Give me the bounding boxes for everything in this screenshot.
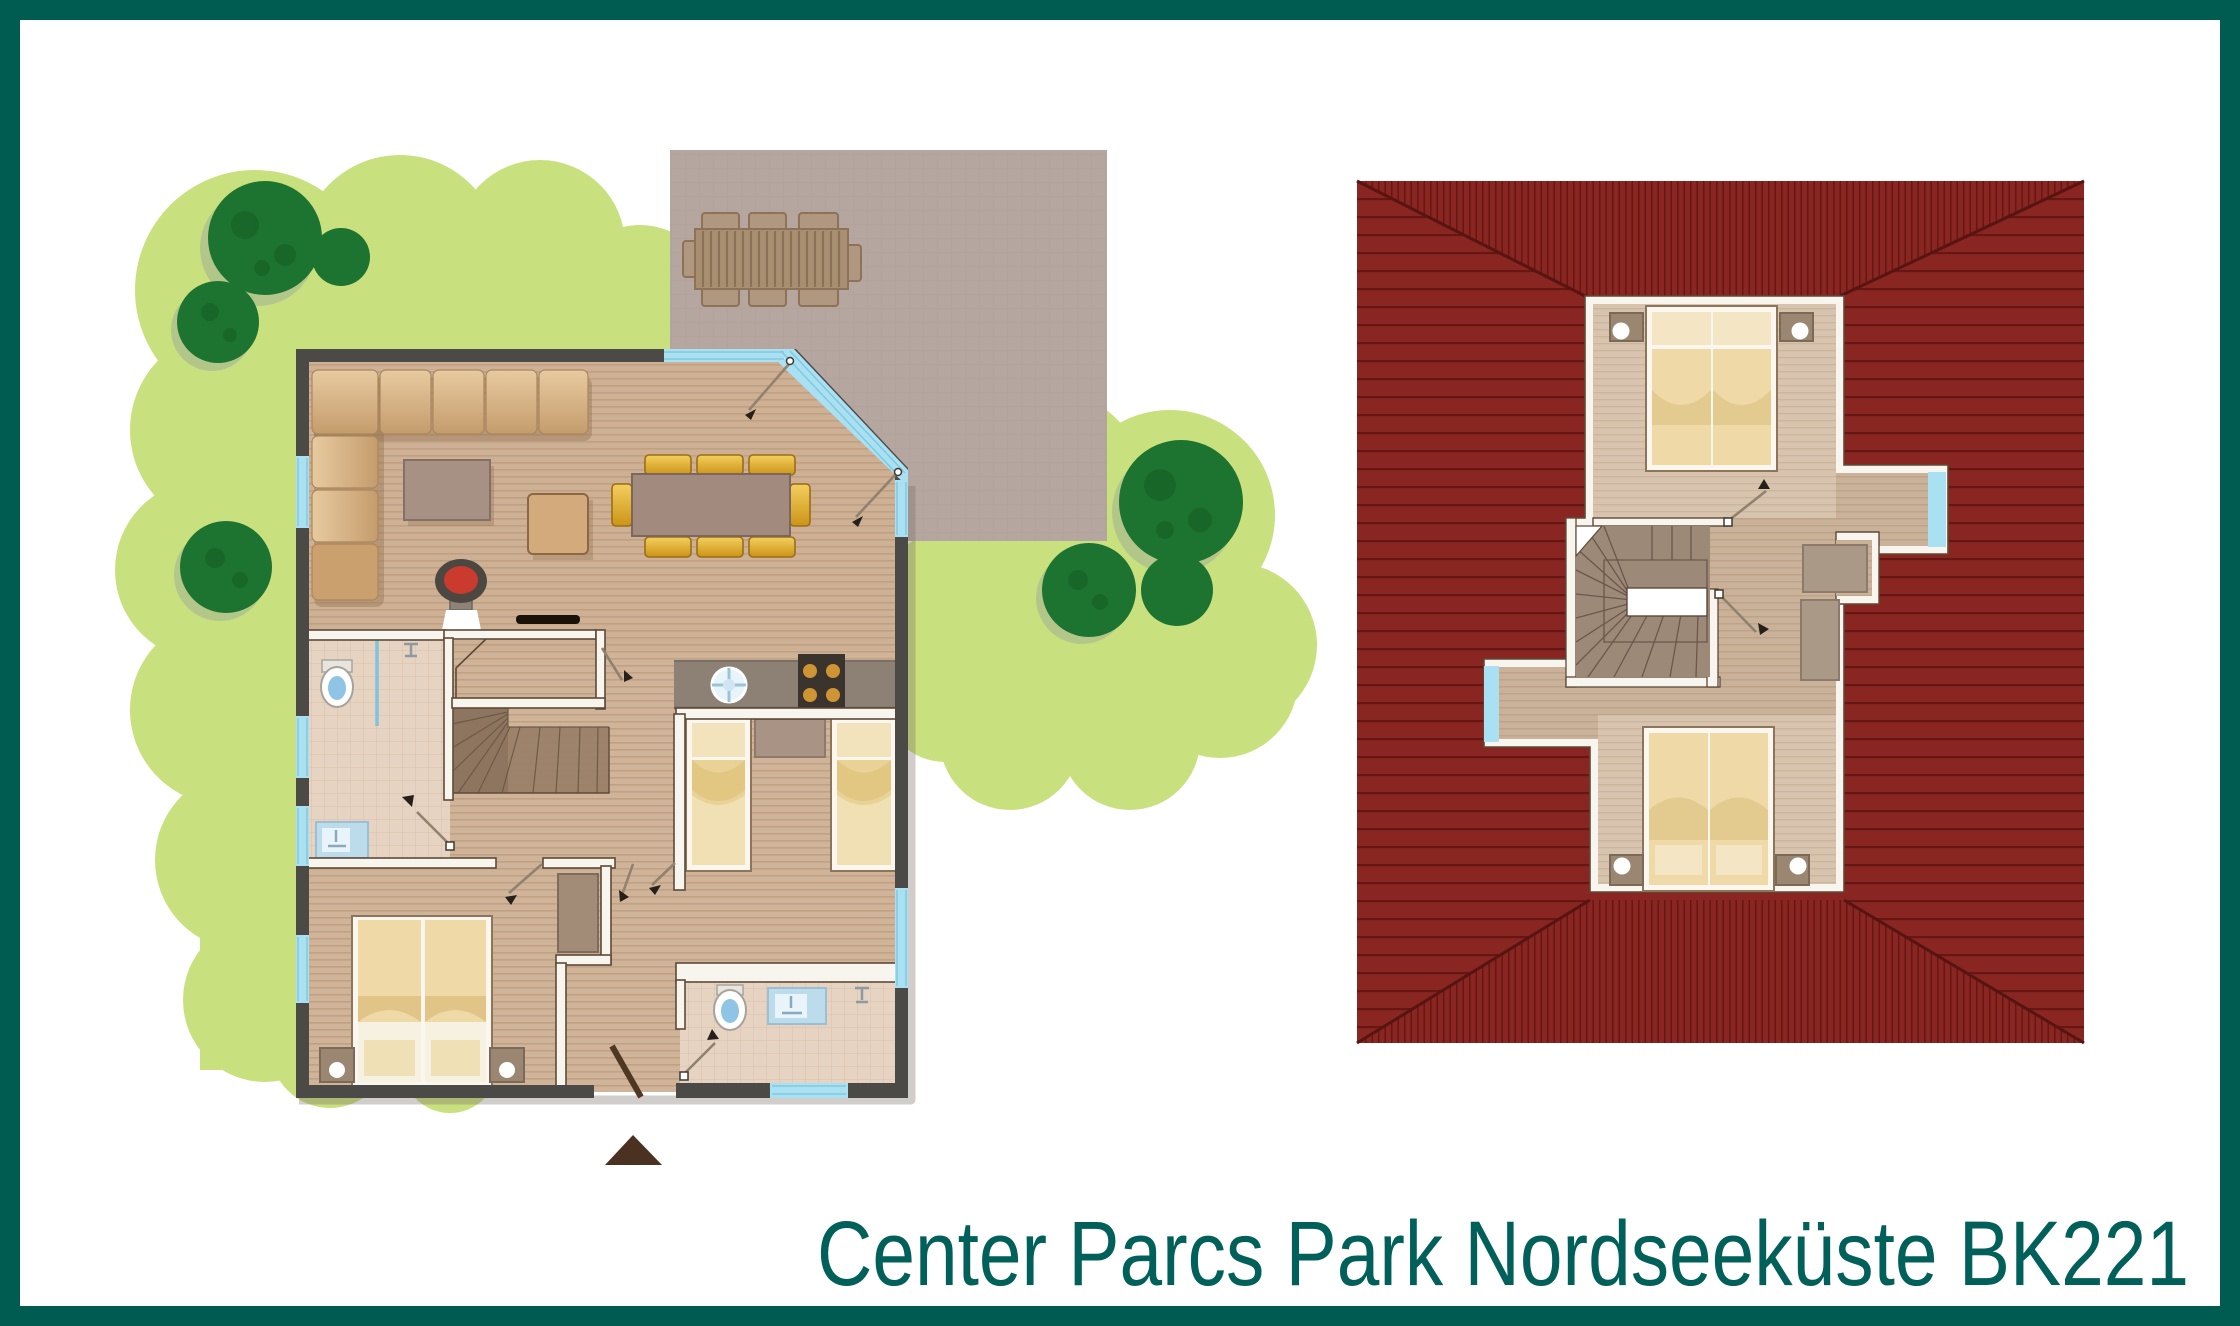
svg-text:Center Parcs Park Nordseeküste: Center Parcs Park Nordseeküste BK221	[817, 1203, 2189, 1305]
